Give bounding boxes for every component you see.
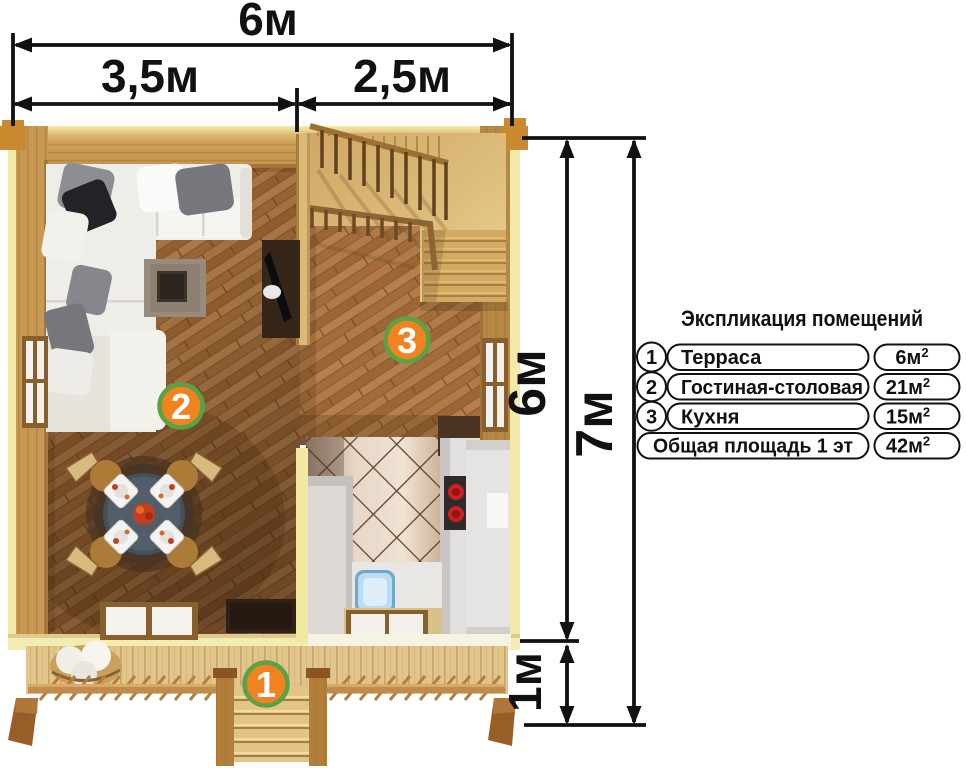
- svg-text:1м: 1м: [499, 652, 551, 712]
- svg-text:1: 1: [646, 347, 657, 369]
- svg-text:6м: 6м: [499, 349, 557, 416]
- svg-text:1: 1: [256, 664, 276, 705]
- svg-text:2: 2: [646, 377, 657, 399]
- svg-text:3: 3: [397, 320, 417, 361]
- svg-text:Кухня: Кухня: [681, 407, 739, 429]
- svg-text:Экспликация помещений: Экспликация помещений: [681, 306, 923, 331]
- svg-text:Терраса: Терраса: [681, 347, 762, 369]
- svg-text:2: 2: [171, 386, 191, 427]
- svg-text:Гостиная-столовая: Гостиная-столовая: [681, 377, 863, 399]
- svg-text:7м: 7м: [566, 390, 624, 457]
- svg-text:Общая площадь 1 эт: Общая площадь 1 эт: [653, 436, 853, 458]
- svg-text:3: 3: [646, 407, 657, 429]
- svg-text:3,5м: 3,5м: [101, 50, 199, 102]
- svg-text:6м: 6м: [238, 0, 298, 45]
- svg-text:2,5м: 2,5м: [353, 50, 451, 102]
